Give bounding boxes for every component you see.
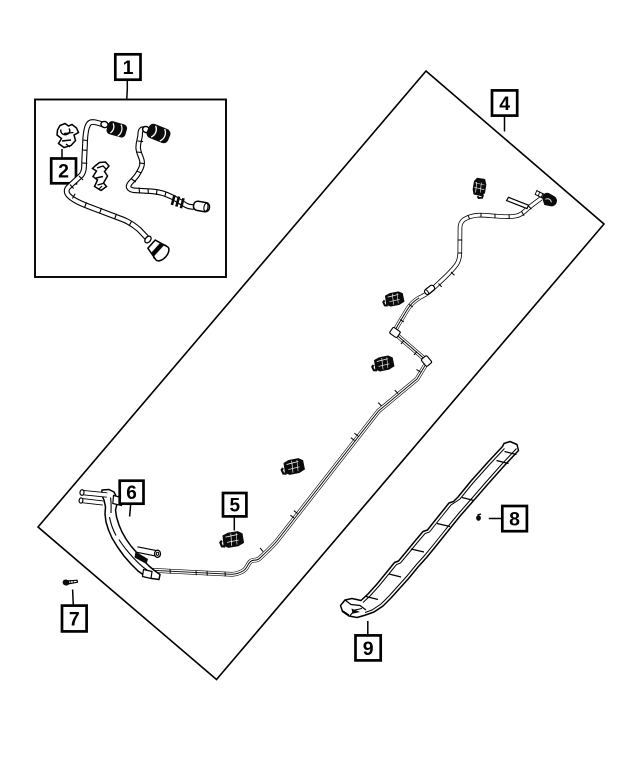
svg-text:6: 6 (126, 483, 137, 504)
svg-text:2: 2 (58, 161, 69, 183)
svg-text:8: 8 (509, 509, 520, 531)
svg-text:5: 5 (230, 495, 241, 516)
svg-text:9: 9 (363, 638, 374, 660)
svg-text:4: 4 (499, 93, 510, 115)
svg-text:1: 1 (123, 57, 134, 79)
svg-text:7: 7 (69, 609, 80, 631)
